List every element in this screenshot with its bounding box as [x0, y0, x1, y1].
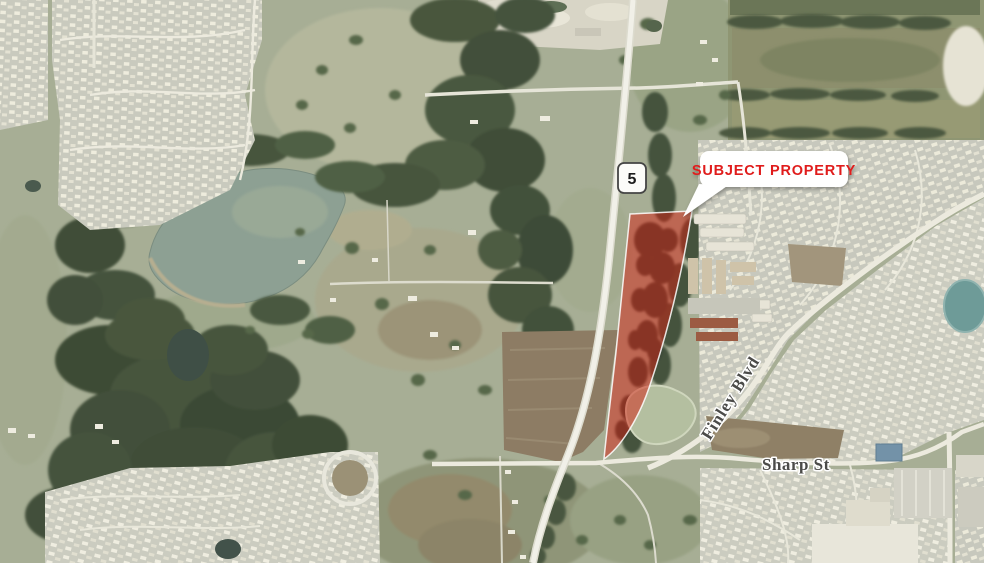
street-label-sharp-st: Sharp St: [762, 455, 830, 474]
aerial-imagery: [0, 0, 984, 563]
highway-5-shield: 5: [618, 163, 646, 193]
highway-route-number: 5: [628, 171, 637, 188]
map-viewport[interactable]: 5 Finley Blvd Sharp St SUBJECT PROPERTY: [0, 0, 984, 563]
callout-label: SUBJECT PROPERTY: [692, 163, 856, 179]
